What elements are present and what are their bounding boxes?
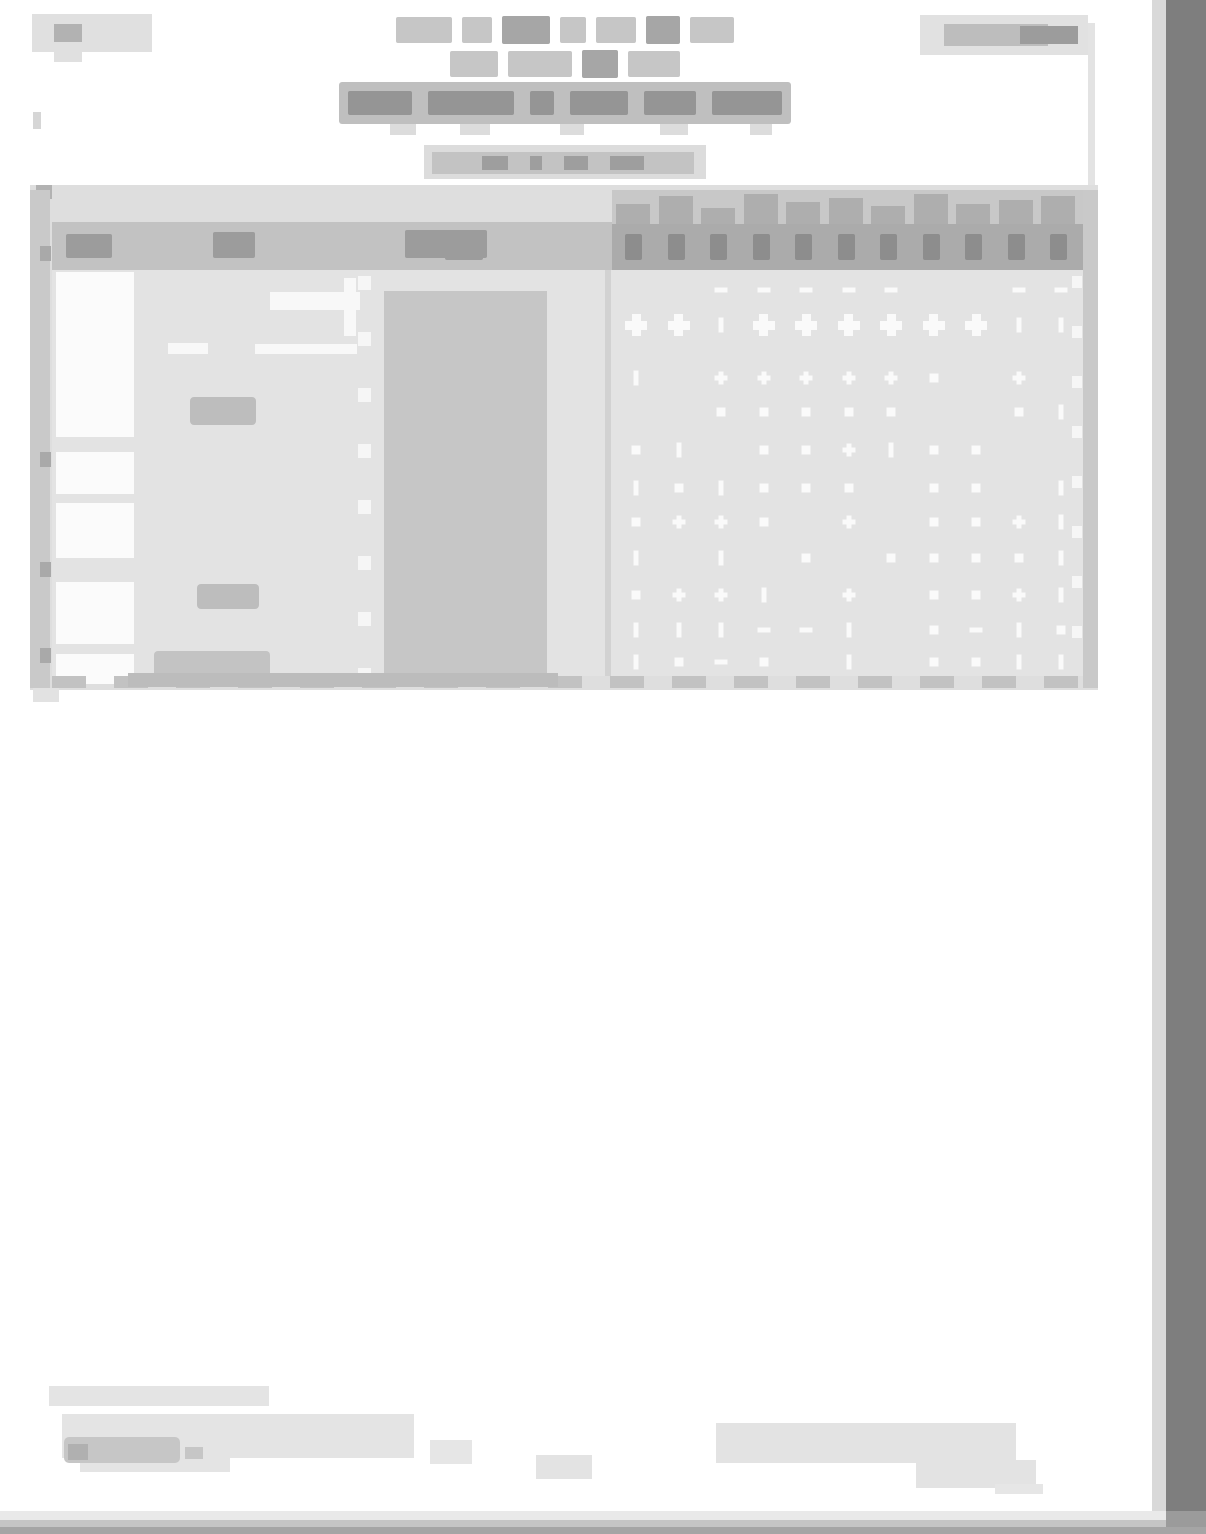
grid-mark: [885, 288, 898, 293]
grid-mark: [632, 518, 641, 527]
scan-edge-right-shadow: [1166, 0, 1206, 1534]
grid-mark: [634, 481, 639, 496]
row-divider-tick: [40, 246, 51, 261]
grid-mark: [929, 554, 938, 563]
column-header-label-blob: [445, 252, 483, 260]
grid-mark: [842, 444, 855, 457]
grid-mark: [846, 655, 851, 670]
date-header-upper-blob: [616, 204, 650, 224]
column-divider-dashes-2: [1072, 276, 1082, 676]
title-word-blob: [450, 51, 498, 77]
grid-mark: [759, 518, 768, 527]
grid-mark: [672, 589, 685, 602]
row-number-cell: [56, 272, 134, 437]
name-column-blank-line-2: [255, 344, 357, 354]
grid-mark: [929, 591, 938, 600]
title-word-blob: [690, 17, 734, 43]
row-divider-tick: [40, 648, 51, 663]
grid-mark: [634, 655, 639, 670]
grid-mark: [800, 372, 813, 385]
grid-mark: [1016, 623, 1021, 638]
grid-mark: [802, 408, 811, 417]
grid-mark: [1059, 655, 1064, 670]
grid-mark: [715, 660, 728, 665]
grid-mark: [1014, 408, 1023, 417]
grid-mark: [972, 591, 981, 600]
date-header-label-blob: [710, 234, 727, 260]
grid-mark: [715, 372, 728, 385]
grid-mark: [1059, 515, 1064, 530]
table-header-right-dates: [612, 224, 1084, 270]
title-line-1: [330, 12, 800, 48]
grid-mark: [1016, 655, 1021, 670]
title-word-blob: [582, 50, 618, 78]
grid-mark: [717, 408, 726, 417]
footer-note-line: [49, 1386, 269, 1406]
title-descender-blob: [660, 124, 688, 135]
title-descender-blob: [750, 124, 772, 135]
date-header-upper-blob: [659, 196, 693, 224]
date-header-label-blob: [838, 234, 855, 260]
grid-mark: [759, 446, 768, 455]
grid-mark: [795, 314, 817, 336]
title-descender-blob: [460, 124, 490, 135]
grid-mark: [929, 658, 938, 667]
date-header-label-blob: [1008, 234, 1025, 260]
grid-mark: [1012, 589, 1025, 602]
grid-mark: [719, 551, 724, 566]
column-header-label-blob: [213, 232, 255, 258]
grid-mark: [759, 408, 768, 417]
page-number-blob: [536, 1455, 592, 1479]
column-divider-dashes-1: [358, 276, 371, 676]
grid-mark: [761, 588, 766, 603]
grid-mark: [972, 446, 981, 455]
grid-mark: [802, 446, 811, 455]
date-header-upper-blob: [999, 200, 1033, 224]
title-word-blob: [530, 91, 554, 115]
row-number-cell: [56, 503, 134, 558]
subtitle-word-blob: [530, 156, 542, 170]
grid-mark: [972, 554, 981, 563]
grid-mark: [887, 554, 896, 563]
grid-mark: [972, 484, 981, 493]
top-left-stamp-ink: [54, 24, 82, 42]
date-header-upper-blob: [701, 208, 735, 224]
signature-block-right-tail-2: [995, 1484, 1043, 1494]
table-below-tab: [33, 688, 59, 702]
grid-mark: [674, 484, 683, 493]
date-header-upper-blob: [1041, 196, 1075, 224]
grid-mark: [885, 372, 898, 385]
title-word-blob: [646, 16, 680, 44]
row-divider-tick: [40, 452, 51, 467]
grid-mark: [1057, 626, 1066, 635]
grid-mark: [634, 623, 639, 638]
grid-mark: [972, 518, 981, 527]
title-line-2: [330, 50, 800, 78]
grid-mark: [676, 623, 681, 638]
grid-mark: [676, 443, 681, 458]
table-header-left: [52, 222, 612, 270]
handwriting-blob-2: [197, 584, 259, 609]
grid-mark: [970, 628, 983, 633]
grid-mark: [625, 314, 647, 336]
title-word-blob: [348, 91, 412, 115]
grid-mark: [889, 443, 894, 458]
signature-block-right: [716, 1423, 1016, 1463]
grid-mark: [1012, 372, 1025, 385]
title-word-blob: [570, 91, 628, 115]
grid-mark: [674, 658, 683, 667]
name-column-blank-bar: [344, 278, 356, 336]
date-header-upper-blob: [871, 206, 905, 224]
grid-mark: [1014, 554, 1023, 563]
date-header-label-blob: [753, 234, 770, 260]
subtitle-ink: [432, 152, 694, 174]
title-word-blob: [462, 17, 492, 43]
title-word-blob: [396, 17, 452, 43]
grid-mark: [929, 518, 938, 527]
grid-mark: [1055, 288, 1068, 293]
grid-mark: [719, 318, 724, 333]
footer-signature-scribble-2: [185, 1447, 203, 1459]
grid-mark: [844, 484, 853, 493]
footer-small-blob: [430, 1440, 472, 1464]
grid-mark: [965, 314, 987, 336]
handwriting-blob-1: [190, 397, 256, 425]
title-word-blob: [428, 91, 514, 115]
top-left-stamp-blob: [32, 14, 152, 52]
date-header-upper-blob: [956, 204, 990, 224]
grid-mark: [842, 516, 855, 529]
column-divider-line: [605, 270, 611, 676]
date-header-label-blob: [795, 234, 812, 260]
date-header-label-blob: [880, 234, 897, 260]
date-header-upper-blob: [914, 194, 948, 224]
title-word-blob: [508, 51, 572, 77]
grid-mark: [757, 372, 770, 385]
grid-mark: [1016, 318, 1021, 333]
grid-mark: [929, 484, 938, 493]
grid-mark: [844, 408, 853, 417]
date-header-label-blob: [965, 234, 982, 260]
grid-mark: [634, 371, 639, 386]
row-number-cell: [56, 582, 134, 644]
grid-mark: [715, 516, 728, 529]
grid-mark: [753, 314, 775, 336]
grid-mark: [1059, 551, 1064, 566]
scan-edge-right-light: [1152, 0, 1166, 1534]
grid-mark: [632, 591, 641, 600]
attendance-grid: [615, 270, 1083, 676]
grid-mark: [757, 288, 770, 293]
name-column-blank-dash: [168, 343, 208, 354]
footer-signature-scribble-dark: [68, 1444, 88, 1460]
grid-mark: [842, 288, 855, 293]
grid-mark: [972, 658, 981, 667]
grid-mark: [923, 314, 945, 336]
grid-mark: [846, 623, 851, 638]
table-left-border: [30, 190, 50, 688]
grid-mark: [838, 314, 860, 336]
grid-mark: [759, 658, 768, 667]
title-descender-blob: [390, 124, 416, 135]
grid-mark: [1059, 405, 1064, 420]
form-code-ink-dark: [1020, 26, 1078, 44]
grid-mark: [632, 446, 641, 455]
grid-mark: [842, 372, 855, 385]
grid-mark: [634, 551, 639, 566]
scan-corner-bottom-right: [1166, 1511, 1206, 1527]
grid-mark: [1012, 288, 1025, 293]
date-header-label-blob: [668, 234, 685, 260]
title-block: [330, 6, 800, 186]
grid-mark: [1059, 588, 1064, 603]
grid-mark: [1059, 481, 1064, 496]
title-word-blob: [644, 91, 696, 115]
title-word-blob: [560, 17, 586, 43]
grid-mark: [842, 589, 855, 602]
subtitle-word-blob: [564, 156, 588, 170]
scan-edge-bottom-band-3: [0, 1527, 1206, 1534]
date-header-upper-blob: [744, 194, 778, 224]
title-word-blob: [628, 51, 680, 77]
table-right-border: [1083, 190, 1098, 688]
grid-mark: [715, 589, 728, 602]
title-word-blob: [596, 17, 636, 43]
date-header-label-blob: [923, 234, 940, 260]
grid-mark: [1059, 318, 1064, 333]
grid-mark: [759, 484, 768, 493]
grid-mark: [1012, 516, 1025, 529]
subtitle-word-blob: [482, 156, 508, 170]
scan-edge-bottom-band-1: [0, 1511, 1166, 1520]
grid-mark: [715, 288, 728, 293]
left-margin-tick: [33, 112, 41, 129]
main-table: [30, 185, 1098, 690]
grid-mark: [802, 484, 811, 493]
row-number-cell: [56, 452, 134, 494]
title-line-3-bold: [339, 82, 791, 124]
grid-mark: [757, 628, 770, 633]
date-header-label-blob: [1050, 234, 1067, 260]
title-descender-blob: [560, 124, 584, 135]
title-word-blob: [502, 16, 550, 44]
grid-mark: [719, 481, 724, 496]
grid-mark: [929, 446, 938, 455]
grid-mark: [929, 626, 938, 635]
date-header-label-blob: [625, 234, 642, 260]
table-header-right-upper: [612, 190, 1084, 224]
grid-mark: [887, 408, 896, 417]
grid-mark: [800, 628, 813, 633]
grid-mark: [929, 374, 938, 383]
column-header-label-blob: [66, 234, 112, 258]
top-left-stamp-tail: [54, 50, 82, 62]
subtitle-word-blob: [610, 156, 644, 170]
date-header-upper-blob: [786, 202, 820, 224]
page-crease-line: [1088, 23, 1095, 185]
grid-mark: [668, 314, 690, 336]
grid-mark: [800, 288, 813, 293]
row-divider-tick: [40, 562, 51, 577]
title-word-blob: [712, 91, 782, 115]
grid-mark: [880, 314, 902, 336]
grid-mark: [672, 516, 685, 529]
scanned-document-page: [0, 0, 1206, 1534]
filled-column-blob: [384, 291, 547, 686]
date-header-upper-blob: [829, 198, 863, 224]
grid-mark: [802, 554, 811, 563]
grid-mark: [719, 623, 724, 638]
table-bottom-border-solid: [128, 673, 558, 687]
